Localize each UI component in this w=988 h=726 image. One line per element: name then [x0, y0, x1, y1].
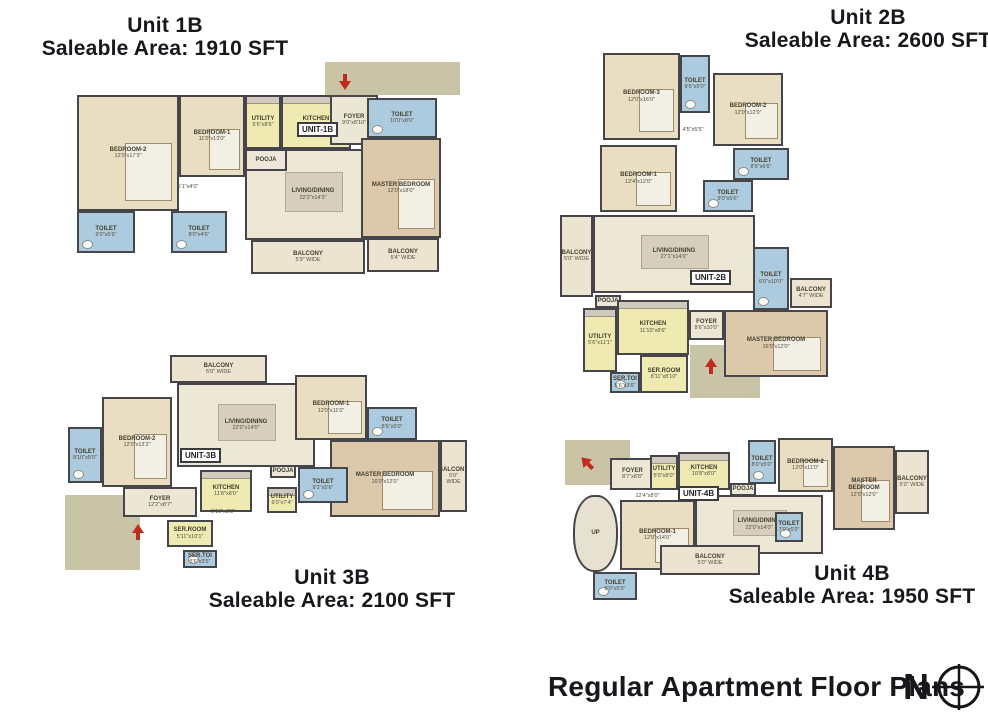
room-label: TOILET [604, 580, 625, 587]
room-dims: 6'0"x7'4" [272, 500, 293, 506]
unit-1b-plan: LIVING/DINING22'2"x14'3"BEDROOM-212'0"x1… [75, 62, 460, 278]
room-dims: 5'0" WIDE [442, 473, 465, 485]
room-toilet: TOILET8'6"x6'6" [733, 148, 789, 180]
room-label: POOJA [272, 468, 293, 475]
room-label: TOILET [188, 226, 209, 233]
room-dims: 5'1"x4'0" [178, 184, 199, 190]
unit-2b-plan: LIVING/DINING27'1"x14'0"BEDROOM-312'0"x1… [555, 42, 847, 398]
room-foyer: FOYER12'2"x8'7" [123, 487, 197, 517]
unit-tag: UNIT-4B [678, 486, 719, 501]
room-label: BALCONY [440, 467, 467, 474]
room-dims: 12'0"x12'0" [850, 492, 877, 498]
room-label: TOILET [312, 479, 333, 486]
room-toilet: TOILET7'0"x5'0" [775, 512, 803, 542]
room-dims: 8'7"x8'8" [622, 474, 643, 480]
room-foyer: FOYER8'7"x8'8" [610, 458, 655, 490]
room-label: BALCONY [562, 250, 592, 257]
room-label: SER.TOI [613, 376, 637, 383]
room-label: KITCHEN [213, 485, 240, 492]
room-label: FOYER [696, 319, 717, 326]
unit-3b-area: Saleable Area: 2100 SFT [209, 589, 456, 613]
room-label: MASTER BEDROOM [356, 472, 414, 479]
room-dims: 11'0"x13'0" [199, 136, 226, 142]
room-ser-room: SER.ROOM8'11"x8'10" [640, 355, 688, 393]
room-balcony: BALCONY5'0" WIDE [170, 355, 267, 383]
room-label: BALCONY [897, 476, 927, 483]
room-utility: UTILITY6'0"x7'4" [267, 487, 297, 513]
room-dims: 10'0"x8'0" [390, 118, 414, 124]
room-label: BEDROOM-2 [119, 436, 156, 443]
room-label: TOILET [391, 112, 412, 119]
room-dims: 12'2"x8'7" [148, 502, 172, 508]
room-dims: 5'0" WIDE [899, 482, 924, 488]
entry-arrow-icon [705, 358, 717, 374]
room-dims: 9'6"x5'0" [685, 84, 706, 90]
room-kitchen: KITCHEN10'8"x8'0" [678, 452, 730, 490]
unit-2b-title: Unit 2B [745, 6, 988, 29]
room-label: LIVING/DINING [292, 188, 335, 195]
room-5-1-x4-0: 5'1"x4'0" [163, 182, 213, 192]
unit-4b-title: Unit 4B [729, 562, 976, 585]
entry-arrow-icon [339, 74, 351, 90]
room-bedroom-2: BEDROOM-212'0"x12'0" [713, 73, 783, 146]
room-dims: 4'7" WIDE [798, 293, 823, 299]
unit-4b-area: Saleable Area: 1950 SFT [729, 585, 976, 609]
room-dims: 5'0"x8'0" [654, 473, 675, 479]
room-label: BEDROOM-3 [623, 90, 660, 97]
room-label: BALCONY [204, 363, 234, 370]
room-bedroom-1: BEDROOM-112'0"x11'0" [295, 375, 367, 440]
room-label: TOILET [751, 456, 772, 463]
room-bedroom-1: BEDROOM-111'0"x13'0" [179, 95, 245, 177]
room-label: TOILET [74, 449, 95, 456]
room-dims: 22'2"x14'3" [299, 195, 326, 201]
room-label: POOJA [255, 157, 276, 164]
unit-tag: UNIT-2B [690, 270, 731, 285]
room-label: TOILET [684, 78, 705, 85]
room-dims: 5'0" WIDE [697, 560, 722, 566]
room-dims: 12'0"x17'3" [114, 153, 141, 159]
room-pooja: POOJA [245, 149, 287, 171]
room-label: MASTER BEDROOM [835, 478, 893, 492]
room-label: UP [591, 530, 599, 537]
unit-3b-header: Unit 3B Saleable Area: 2100 SFT [209, 566, 456, 613]
room-balcony: BALCONY5'0" WIDE [895, 450, 929, 514]
room-label: BEDROOM-1 [194, 130, 231, 137]
room-dims: 8'6"x5'0" [382, 424, 403, 430]
room-label: TOILET [381, 417, 402, 424]
room-pooja: POOJA [270, 465, 296, 478]
room-dims: 22'0"x14'0" [232, 425, 259, 431]
room-up: UP [573, 495, 618, 572]
room-5-10-x8-8: 5'10"x8'8" [203, 508, 243, 517]
room-dims: 9'2"x5'6" [313, 485, 334, 491]
room-ser-room: SER.ROOM5'11"x10'1" [167, 520, 213, 547]
unit-1b-header: Unit 1B Saleable Area: 1910 SFT [42, 14, 289, 61]
room-label: SER.ROOM [174, 527, 207, 534]
room-utility: UTILITY5'0"x8'0" [650, 455, 678, 490]
entry-arrow-icon [132, 524, 144, 540]
room-4-5-x5-5: 4'5"x5'5" [673, 125, 713, 135]
room-dims: 11'8"x8'0" [214, 491, 238, 497]
unit-2b-area: Saleable Area: 2600 SFT [745, 29, 988, 53]
north-letter: N [903, 669, 929, 705]
room-dims: 9'0"x8'10" [342, 120, 366, 126]
room-master-bedroom: MASTER BEDROOM16'0"x12'0" [724, 310, 828, 377]
room-label: KITCHEN [640, 321, 667, 328]
room-dims: 5'10"x8'8" [211, 509, 235, 515]
unit-3b-title: Unit 3B [209, 566, 456, 589]
room-master-bedroom: MASTER BEDROOM12'0"x18'0" [361, 138, 441, 238]
room-dims: 8'6"x10'0" [694, 325, 718, 331]
room-label: FOYER [150, 496, 171, 503]
room-dims: 22'0"x14'0" [745, 525, 772, 531]
room-label: FOYER [622, 468, 643, 475]
room-label: BALCONY [293, 251, 323, 258]
room-label: TOILET [778, 521, 799, 528]
room-dims: 8'0"x5'0" [752, 462, 773, 468]
room-dims: 4'5"x5'5" [683, 127, 704, 133]
room-toilet: TOILET9'0"x5'6" [703, 180, 753, 212]
room-dims: 13'4"x12'0" [625, 179, 652, 185]
room-dims: 9'0"x5'6" [96, 232, 117, 238]
room-pooja: POOJA [730, 483, 756, 496]
room-ser-toi: SER.TOI5'6"x3'6" [610, 372, 640, 393]
room-bedroom-2: BEDROOM-212'0"x11'0" [778, 438, 833, 492]
room-label: FOYER [344, 114, 365, 121]
room-dims: 5'6"x11'1" [588, 340, 612, 346]
room-dims: 12'4"x8'0" [635, 493, 659, 499]
room-dims: 5'11"x10'1" [177, 534, 204, 540]
room-label: MASTER BEDROOM [747, 337, 805, 344]
room-dims: 5'0" WIDE [564, 256, 589, 262]
room-dims: 16'0"x12'0" [371, 479, 398, 485]
room-label: UTILITY [589, 334, 612, 341]
room-dims: 11'10"x8'6" [640, 328, 667, 334]
room-bedroom-1: BEDROOM-113'4"x12'0" [600, 145, 677, 212]
room-dims: 6'0"x10'0" [759, 279, 783, 285]
room-dims: 8'0"x4'6" [189, 232, 210, 238]
room-dims: 12'0"x11'0" [792, 465, 819, 471]
room-toilet: TOILET8'6"x5'0" [367, 407, 417, 440]
room-label: POOJA [597, 298, 618, 305]
room-label: UTILITY [271, 494, 294, 501]
room-kitchen: KITCHEN11'8"x8'0" [200, 470, 252, 512]
room-label: BALCONY [695, 554, 725, 561]
room-utility: UTILITY5'6"x11'1" [583, 308, 617, 372]
room-label: BEDROOM-1 [313, 401, 350, 408]
room-label: TOILET [750, 158, 771, 165]
room-dims: 5'6"x8'6" [253, 122, 274, 128]
room-balcony: BALCONY4'7" WIDE [790, 278, 832, 308]
room-balcony: BALCONY5'9" WIDE [251, 240, 365, 274]
room-toilet: TOILET9'2"x5'6" [298, 467, 348, 503]
room-dims: 12'0"x12'0" [734, 110, 761, 116]
room-dims: 8'10"x5'0" [73, 455, 97, 461]
room-dims: 8'0"x5'0" [605, 586, 626, 592]
room-label: UTILITY [252, 116, 275, 123]
room-label: TOILET [717, 190, 738, 197]
north-compass-icon [931, 662, 985, 712]
room-dims: 5'6"x3'6" [615, 383, 636, 389]
unit-tag: UNIT-3B [180, 448, 221, 463]
unit-tag: UNIT-1B [297, 122, 338, 137]
room-dims: 7'0"x5'0" [779, 527, 800, 533]
room-12-4-x8-0: 12'4"x8'0" [625, 492, 670, 501]
room-label: BALCONY [388, 249, 418, 256]
room-label: LIVING/DINING [738, 518, 781, 525]
room-label: BEDROOM-2 [110, 147, 147, 154]
unit-3b-plan: LIVING/DINING22'0"x14'0"BALCONY5'0" WIDE… [35, 348, 467, 572]
room-master-bedroom: MASTER BEDROOM12'0"x12'0" [833, 446, 895, 530]
room-balcony: BALCONY5'4" WIDE [367, 238, 439, 272]
room-label: SER.TOI [188, 553, 212, 560]
room-toilet: TOILET8'10"x5'0" [68, 427, 102, 483]
room-label: BEDROOM-2 [730, 103, 767, 110]
room-toilet: TOILET10'0"x8'0" [367, 98, 437, 138]
room-dims: 9'0"x5'6" [718, 196, 739, 202]
room-dims: 12'0"x11'0" [318, 408, 345, 414]
floor-plans-canvas: Unit 1B Saleable Area: 1910 SFT Unit 2B … [0, 0, 988, 726]
room-label: SER.ROOM [648, 368, 681, 375]
room-dims: 8'6"x6'6" [751, 164, 772, 170]
room-dims: 12'0"x14'0" [644, 535, 671, 541]
unit-2b-header: Unit 2B Saleable Area: 2600 SFT [745, 6, 988, 53]
room-dims: 12'0"x18'0" [387, 188, 414, 194]
room-label: TOILET [760, 272, 781, 279]
room-label: LIVING/DINING [653, 248, 696, 255]
room-label: BEDROOM-1 [620, 172, 657, 179]
room-dims: 5'4" WIDE [390, 255, 415, 261]
room-dims: 5'6"x3'5" [190, 559, 211, 565]
room-label: UTILITY [653, 466, 676, 473]
room-label: MASTER BEDROOM [372, 182, 430, 189]
room-dims: 16'0"x12'0" [762, 344, 789, 350]
room-dims: 27'1"x14'0" [660, 254, 687, 260]
unit-4b-header: Unit 4B Saleable Area: 1950 SFT [729, 562, 976, 609]
unit-1b-title: Unit 1B [42, 14, 289, 37]
room-dims: 8'11"x8'10" [651, 374, 678, 380]
unit-1b-area: Saleable Area: 1910 SFT [42, 37, 289, 61]
room-bedroom-3: BEDROOM-312'0"x16'0" [603, 53, 680, 140]
room-toilet: TOILET9'6"x5'0" [680, 55, 710, 113]
room-dims: 5'0" WIDE [206, 369, 231, 375]
room-kitchen: KITCHEN11'10"x8'6" [617, 300, 689, 355]
room-label: TOILET [95, 226, 116, 233]
room-label: KITCHEN [691, 465, 718, 472]
room-toilet: TOILET9'0"x5'6" [77, 211, 135, 253]
room-label: BEDROOM-2 [787, 459, 824, 466]
room-label: POOJA [732, 486, 753, 493]
room-utility: UTILITY5'6"x8'6" [245, 95, 281, 149]
room-toilet: TOILET8'0"x4'6" [171, 211, 227, 253]
room-label: BEDROOM-1 [639, 529, 676, 536]
room-toilet: TOILET8'0"x5'0" [748, 440, 776, 484]
room-balcony: BALCONY5'0" WIDE [440, 440, 467, 512]
room-toilet: TOILET6'0"x10'0" [753, 247, 789, 310]
room-dims: 10'8"x8'0" [692, 471, 716, 477]
room-foyer: FOYER8'6"x10'0" [689, 310, 724, 340]
room-label: LIVING/DINING [225, 419, 268, 426]
room-bedroom-2: BEDROOM-212'0"x13'2" [102, 397, 172, 487]
room-bedroom-2: BEDROOM-212'0"x17'3" [77, 95, 179, 211]
room-toilet: TOILET8'0"x5'0" [593, 572, 637, 600]
north-indicator: N [903, 662, 985, 712]
room-dims: 12'0"x16'0" [628, 97, 655, 103]
room-label: BALCONY [796, 287, 826, 294]
room-dims: 12'0"x13'2" [123, 442, 150, 448]
room-dims: 5'9" WIDE [295, 257, 320, 263]
room-balcony: BALCONY5'0" WIDE [560, 215, 593, 297]
